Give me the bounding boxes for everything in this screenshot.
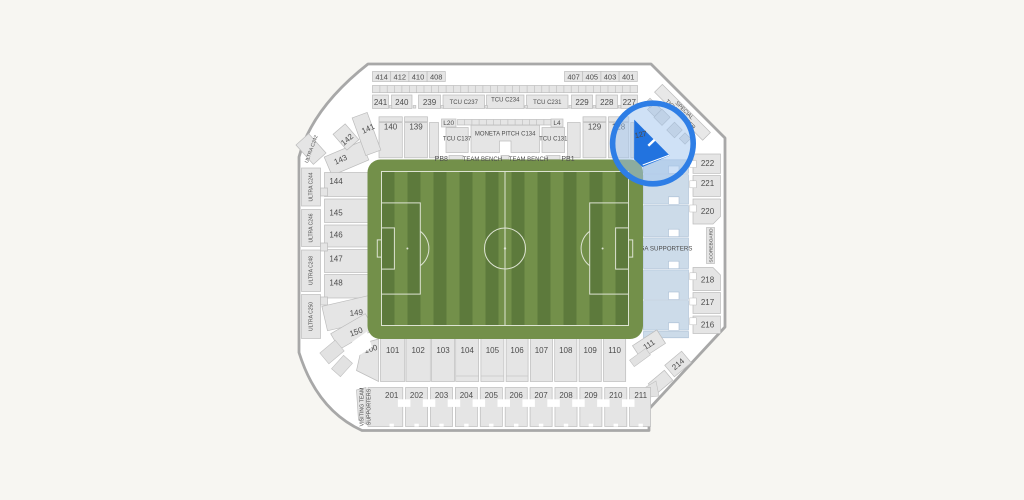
svg-text:222: 222	[701, 159, 715, 168]
svg-text:408: 408	[430, 72, 443, 81]
svg-text:210: 210	[609, 391, 623, 400]
svg-text:221: 221	[701, 179, 715, 188]
svg-text:147: 147	[329, 254, 343, 263]
svg-text:VISITING TEAM: VISITING TEAM	[359, 388, 365, 427]
svg-text:TEAM BENCH: TEAM BENCH	[463, 157, 502, 163]
svg-text:TCU C237: TCU C237	[450, 100, 479, 106]
svg-text:101: 101	[386, 346, 400, 355]
svg-text:205: 205	[485, 391, 499, 400]
svg-text:140: 140	[384, 123, 398, 132]
svg-text:GA SUPPORTERS: GA SUPPORTERS	[640, 246, 693, 253]
svg-text:ULTRA C246: ULTRA C246	[309, 213, 315, 242]
svg-text:110: 110	[608, 346, 621, 355]
svg-text:107: 107	[535, 346, 549, 355]
svg-text:ULTRA C248: ULTRA C248	[309, 256, 315, 285]
svg-text:139: 139	[409, 123, 423, 132]
svg-text:102: 102	[411, 346, 425, 355]
svg-text:403: 403	[604, 72, 617, 81]
svg-text:L4: L4	[553, 120, 561, 127]
svg-text:239: 239	[423, 98, 437, 107]
svg-text:414: 414	[375, 72, 388, 81]
svg-text:SCOREBOARD: SCOREBOARD	[708, 228, 714, 263]
svg-text:241: 241	[374, 98, 388, 107]
svg-text:202: 202	[410, 391, 424, 400]
svg-text:TCU C231: TCU C231	[533, 100, 562, 106]
svg-text:146: 146	[329, 230, 343, 239]
svg-text:106: 106	[510, 346, 524, 355]
svg-text:208: 208	[559, 391, 573, 400]
svg-text:148: 148	[329, 278, 343, 287]
svg-text:216: 216	[701, 320, 715, 329]
svg-text:PB8: PB8	[435, 156, 448, 163]
svg-text:104: 104	[461, 346, 475, 355]
svg-text:229: 229	[575, 98, 589, 107]
svg-text:228: 228	[600, 98, 614, 107]
svg-text:218: 218	[701, 275, 715, 284]
svg-text:204: 204	[460, 391, 474, 400]
svg-text:211: 211	[634, 391, 647, 400]
svg-text:108: 108	[559, 346, 573, 355]
svg-text:201: 201	[385, 391, 399, 400]
svg-text:144: 144	[329, 177, 343, 186]
svg-text:209: 209	[584, 391, 598, 400]
svg-text:145: 145	[329, 208, 343, 217]
svg-text:TCU C234: TCU C234	[491, 98, 520, 104]
svg-text:MONETA PITCH C134: MONETA PITCH C134	[475, 132, 536, 138]
svg-text:103: 103	[436, 346, 450, 355]
svg-text:TCU C137: TCU C137	[443, 137, 472, 143]
svg-text:PB1: PB1	[561, 156, 574, 163]
svg-text:105: 105	[486, 346, 500, 355]
svg-text:240: 240	[395, 98, 409, 107]
svg-text:410: 410	[412, 72, 425, 81]
svg-text:207: 207	[534, 391, 548, 400]
svg-text:405: 405	[586, 72, 599, 81]
svg-text:407: 407	[567, 72, 580, 81]
svg-text:206: 206	[510, 391, 524, 400]
svg-text:412: 412	[394, 72, 407, 81]
svg-text:220: 220	[701, 207, 715, 216]
svg-text:129: 129	[588, 123, 602, 132]
svg-text:L20: L20	[443, 120, 454, 127]
svg-text:TCU C131: TCU C131	[539, 137, 568, 143]
svg-text:SUPPORTERS: SUPPORTERS	[367, 388, 373, 425]
svg-text:401: 401	[622, 72, 635, 81]
svg-text:217: 217	[701, 298, 715, 307]
svg-text:109: 109	[584, 346, 598, 355]
svg-text:203: 203	[435, 391, 449, 400]
svg-text:TEAM BENCH: TEAM BENCH	[509, 157, 548, 163]
svg-text:ULTRA C244: ULTRA C244	[309, 172, 315, 201]
svg-text:ULTRA C250: ULTRA C250	[309, 302, 315, 331]
